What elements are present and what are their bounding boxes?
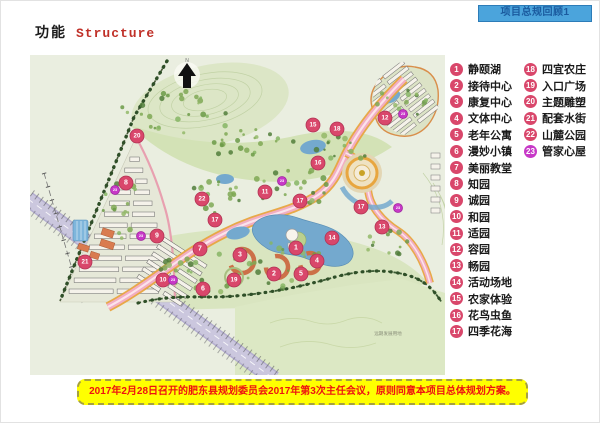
legend-badge: 6	[450, 145, 463, 158]
legend-badge: 10	[450, 210, 463, 223]
map-marker: 3	[233, 248, 247, 262]
legend-item: 6漫妙小镇	[450, 143, 512, 159]
legend-badge: 11	[450, 227, 463, 240]
legend-badge: 13	[450, 259, 463, 272]
svg-text:17: 17	[297, 198, 304, 205]
map-marker: 9	[150, 229, 164, 243]
svg-text:6: 6	[201, 286, 205, 293]
page-title-zh: 功能	[35, 24, 67, 40]
legend-badge: 17	[450, 325, 463, 338]
legend-item: 16花鸟虫鱼	[450, 307, 512, 323]
legend-item: 2接待中心	[450, 77, 512, 93]
map-marker: 18	[330, 122, 344, 136]
map-marker: 13	[375, 220, 389, 234]
legend-badge: 4	[450, 112, 463, 125]
map-marker: 23	[137, 232, 146, 241]
legend-column-1: 1静颐湖2接待中心3康复中心4文体中心5老年公寓6漫妙小镇7美丽教堂8知园9诚园…	[450, 61, 512, 340]
map-marker: 23	[399, 110, 408, 119]
legend-item: 12容园	[450, 241, 512, 257]
future-land-label: 远期发展用地	[374, 330, 402, 337]
map-marker: 21	[78, 255, 92, 269]
legend-badge: 5	[450, 128, 463, 141]
legend-item: 10和园	[450, 209, 512, 225]
legend-badge: 8	[450, 177, 463, 190]
legend-badge: 9	[450, 194, 463, 207]
legend-item: 9诚园	[450, 192, 512, 208]
map-marker: 7	[193, 242, 207, 256]
header-tab[interactable]: 项目总规回顾1	[478, 5, 592, 22]
legend-label: 接待中心	[468, 78, 512, 94]
map-marker: 23	[394, 204, 403, 213]
legend-badge: 3	[450, 95, 463, 108]
svg-text:9: 9	[155, 233, 159, 240]
legend-item: 8知园	[450, 176, 512, 192]
legend-label: 主题雕塑	[542, 94, 586, 110]
map-canvas: N 远期发展用地 1234567891011121314151617171718…	[30, 55, 445, 375]
svg-text:10: 10	[160, 277, 167, 284]
map-marker: 16	[311, 156, 325, 170]
legend-badge: 20	[524, 95, 537, 108]
legend-badge: 2	[450, 79, 463, 92]
svg-text:13: 13	[379, 224, 386, 231]
legend-item: 13畅园	[450, 258, 512, 274]
legend-item: 5老年公寓	[450, 127, 512, 143]
legend-badge: 22	[524, 128, 537, 141]
map-marker: 2	[267, 267, 281, 281]
legend-item: 21配套水街	[524, 110, 586, 126]
svg-text:N: N	[185, 58, 189, 64]
map-marker: 17	[208, 213, 222, 227]
map-marker: 12	[378, 111, 392, 125]
legend-label: 花鸟虫鱼	[468, 307, 512, 323]
legend-item: 1静颐湖	[450, 61, 512, 77]
legend-label: 和园	[468, 209, 490, 225]
legend-label: 诚园	[468, 192, 490, 208]
legend-badge: 18	[524, 63, 537, 76]
map-marker: 15	[306, 118, 320, 132]
map-marker: 8	[119, 176, 133, 190]
legend-label: 老年公寓	[468, 127, 512, 143]
page-title: 功能Structure	[35, 22, 155, 42]
svg-text:19: 19	[231, 277, 238, 284]
map-marker: 17	[293, 194, 307, 208]
svg-text:3: 3	[238, 252, 242, 259]
map-marker: 1	[289, 241, 303, 255]
legend-badge: 12	[450, 243, 463, 256]
legend-badge: 21	[524, 112, 537, 125]
map-marker: 20	[130, 129, 144, 143]
legend-item: 22山麓公园	[524, 127, 586, 143]
svg-text:20: 20	[134, 133, 141, 140]
legend-label: 静颐湖	[468, 61, 501, 77]
map-marker: 19	[227, 273, 241, 287]
svg-text:17: 17	[212, 217, 219, 224]
svg-text:14: 14	[329, 235, 336, 242]
legend-label: 漫妙小镇	[468, 143, 512, 159]
legend-badge: 14	[450, 276, 463, 289]
map-marker: 22	[195, 192, 209, 206]
legend-column-2: 18四宜农庄19入口广场20主题雕塑21配套水街22山麓公园23管家心屋	[524, 61, 586, 159]
svg-text:11: 11	[262, 189, 269, 196]
legend-item: 19入口广场	[524, 77, 586, 93]
slide: 项目总规回顾1 功能Structure	[0, 0, 600, 423]
legend-badge: 7	[450, 161, 463, 174]
svg-text:18: 18	[334, 126, 341, 133]
svg-text:7: 7	[198, 246, 202, 253]
svg-text:23: 23	[401, 112, 405, 116]
map-marker: 11	[258, 185, 272, 199]
legend-item: 20主题雕塑	[524, 94, 586, 110]
legend-badge: 23	[524, 145, 537, 158]
svg-text:16: 16	[315, 160, 322, 167]
legend-item: 14活动场地	[450, 274, 512, 290]
legend-label: 畅园	[468, 258, 490, 274]
legend-label: 适园	[468, 225, 490, 241]
legend-item: 11适园	[450, 225, 512, 241]
legend-item: 7美丽教堂	[450, 159, 512, 175]
approval-note: 2017年2月28日召开的肥东县规划委员会2017年第3次主任会议，原则同意本项…	[77, 379, 528, 405]
legend-label: 四季花海	[468, 323, 512, 339]
svg-text:23: 23	[171, 278, 175, 282]
svg-text:4: 4	[315, 258, 319, 265]
legend-label: 四宜农庄	[542, 61, 586, 77]
svg-text:17: 17	[358, 204, 365, 211]
legend-label: 容园	[468, 241, 490, 257]
page-title-en: Structure	[76, 26, 155, 41]
legend-label: 入口广场	[542, 78, 586, 94]
legend-badge: 1	[450, 63, 463, 76]
legend-label: 知园	[468, 176, 490, 192]
legend-label: 康复中心	[468, 94, 512, 110]
svg-text:23: 23	[113, 188, 117, 192]
legend-label: 配套水街	[542, 110, 586, 126]
legend-item: 15农家体验	[450, 290, 512, 306]
legend-item: 3康复中心	[450, 94, 512, 110]
legend-item: 18四宜农庄	[524, 61, 586, 77]
svg-text:22: 22	[199, 196, 206, 203]
svg-text:5: 5	[299, 271, 303, 278]
svg-text:23: 23	[139, 234, 143, 238]
map-marker: 4	[310, 254, 324, 268]
legend-label: 美丽教堂	[468, 160, 512, 176]
legend-label: 山麓公园	[542, 127, 586, 143]
map-marker: 6	[196, 282, 210, 296]
map-marker: 5	[294, 267, 308, 281]
svg-text:21: 21	[82, 259, 89, 266]
legend-badge: 16	[450, 309, 463, 322]
legend-item: 17四季花海	[450, 323, 512, 339]
svg-text:15: 15	[310, 122, 317, 129]
legend-badge: 19	[524, 79, 537, 92]
svg-text:1: 1	[294, 245, 298, 252]
map-marker: 17	[354, 200, 368, 214]
svg-text:23: 23	[280, 179, 284, 183]
svg-text:12: 12	[382, 115, 389, 122]
legend-label: 文体中心	[468, 110, 512, 126]
map-marker: 23	[111, 186, 120, 195]
map-marker: 10	[156, 273, 170, 287]
svg-text:23: 23	[396, 206, 400, 210]
legend-badge: 15	[450, 292, 463, 305]
legend-item: 23管家心屋	[524, 143, 586, 159]
legend-label: 活动场地	[468, 274, 512, 290]
svg-text:8: 8	[124, 180, 128, 187]
master-plan-map: N 远期发展用地 1234567891011121314151617171718…	[30, 55, 445, 375]
legend-label: 管家心屋	[542, 143, 586, 159]
svg-text:2: 2	[272, 271, 276, 278]
legend-item: 4文体中心	[450, 110, 512, 126]
map-marker: 14	[325, 231, 339, 245]
map-marker: 23	[278, 177, 287, 186]
map-marker: 23	[169, 276, 178, 285]
legend-label: 农家体验	[468, 291, 512, 307]
